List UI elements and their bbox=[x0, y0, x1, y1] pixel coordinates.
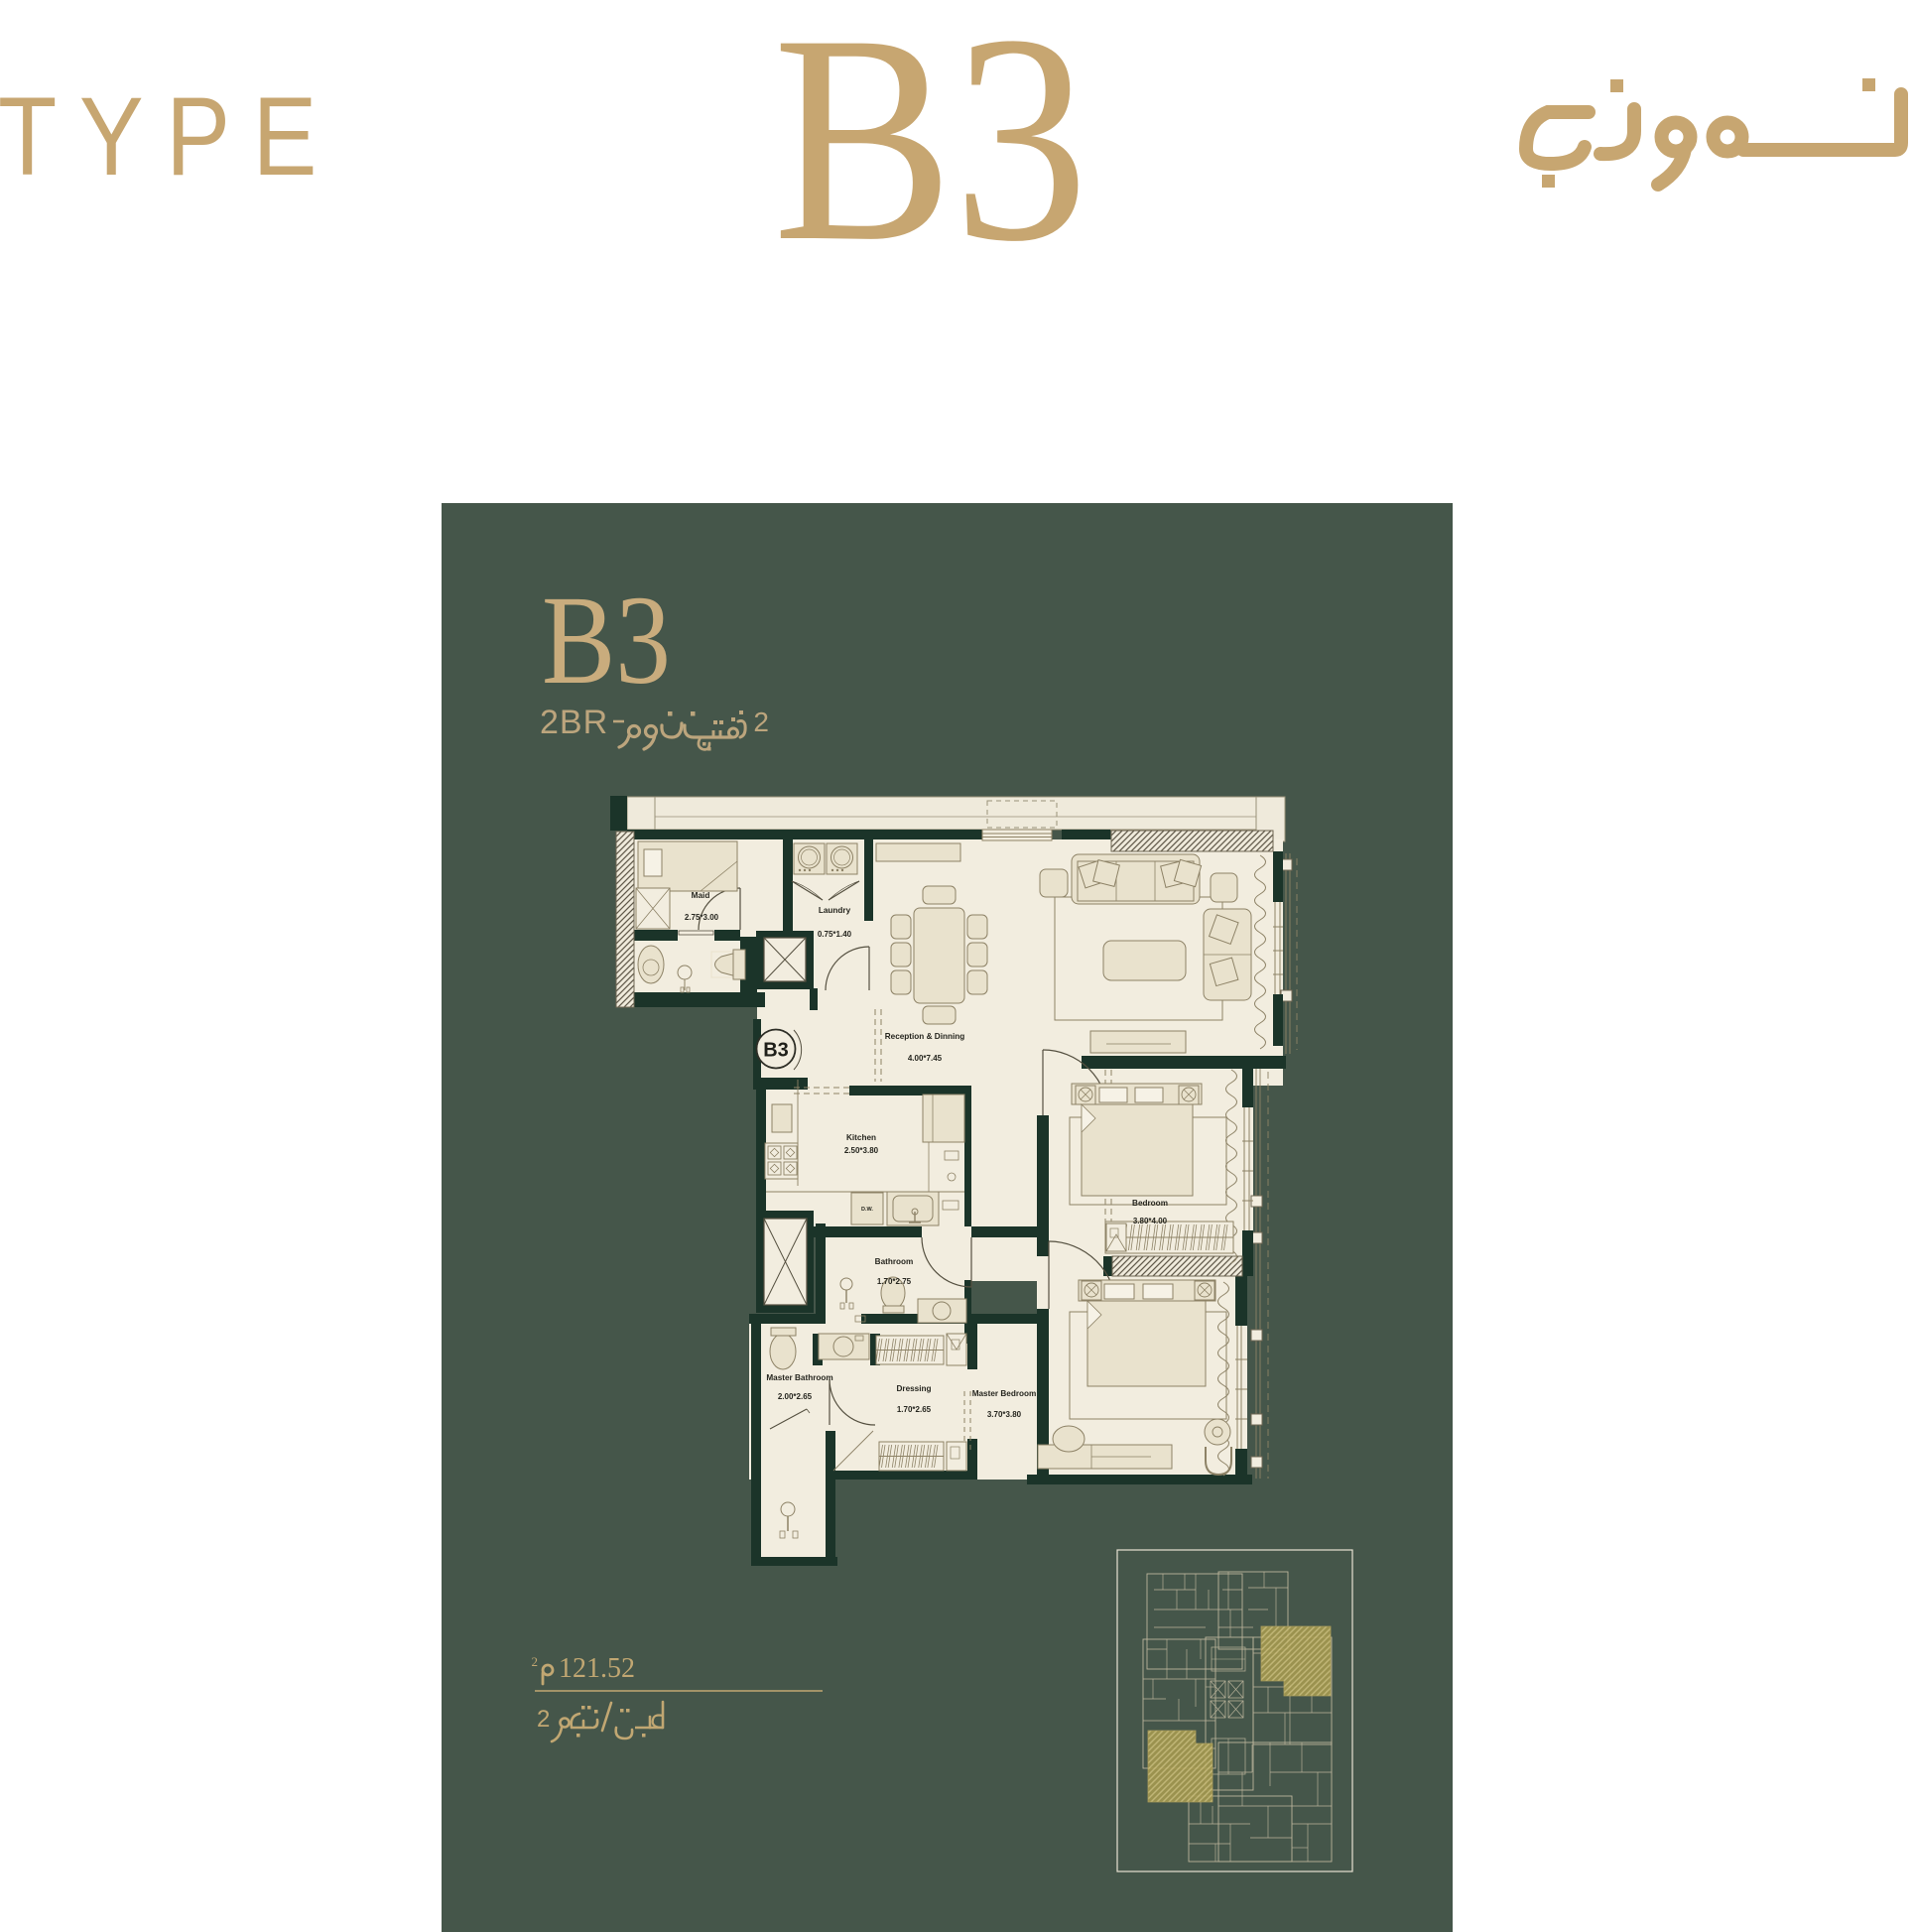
svg-text:0.75*1.40: 0.75*1.40 bbox=[818, 930, 852, 939]
svg-text:2.50*3.80: 2.50*3.80 bbox=[844, 1146, 879, 1155]
svg-text:2.00*2.65: 2.00*2.65 bbox=[778, 1392, 813, 1401]
svg-text:TYPE: TYPE bbox=[0, 74, 339, 198]
svg-text:3.70*3.80: 3.70*3.80 bbox=[987, 1410, 1022, 1419]
svg-text:D.W.: D.W. bbox=[861, 1207, 873, 1213]
svg-text:Kitchen: Kitchen bbox=[846, 1133, 876, 1142]
svg-text:Laundry: Laundry bbox=[819, 906, 851, 915]
svg-text:B3: B3 bbox=[773, 0, 1088, 303]
svg-text:4.00*7.45: 4.00*7.45 bbox=[908, 1054, 943, 1063]
svg-text:2BR: 2BR bbox=[540, 704, 608, 741]
svg-text:Master Bedroom: Master Bedroom bbox=[972, 1389, 1037, 1398]
svg-text:1.70*2.75: 1.70*2.75 bbox=[877, 1277, 912, 1286]
svg-text:3.80*4.00: 3.80*4.00 bbox=[1133, 1217, 1168, 1225]
svg-text:121.52: 121.52 bbox=[559, 1653, 635, 1684]
svg-text:Maid: Maid bbox=[692, 891, 710, 900]
svg-text:Bathroom: Bathroom bbox=[875, 1257, 914, 1266]
svg-text:Master Bathroom: Master Bathroom bbox=[766, 1373, 832, 1382]
svg-text:1.70*2.65: 1.70*2.65 bbox=[897, 1405, 932, 1414]
svg-text:Bedroom: Bedroom bbox=[1132, 1199, 1168, 1208]
svg-text:2.75*3.00: 2.75*3.00 bbox=[685, 913, 719, 922]
svg-text:B3: B3 bbox=[542, 570, 671, 710]
svg-text:B3: B3 bbox=[763, 1040, 789, 1062]
svg-text:2: 2 bbox=[532, 1654, 539, 1669]
svg-text:Dressing: Dressing bbox=[896, 1384, 931, 1393]
svg-text:2: 2 bbox=[753, 707, 769, 737]
svg-text:2: 2 bbox=[537, 1706, 550, 1733]
svg-text:Reception & Dinning: Reception & Dinning bbox=[885, 1032, 965, 1041]
